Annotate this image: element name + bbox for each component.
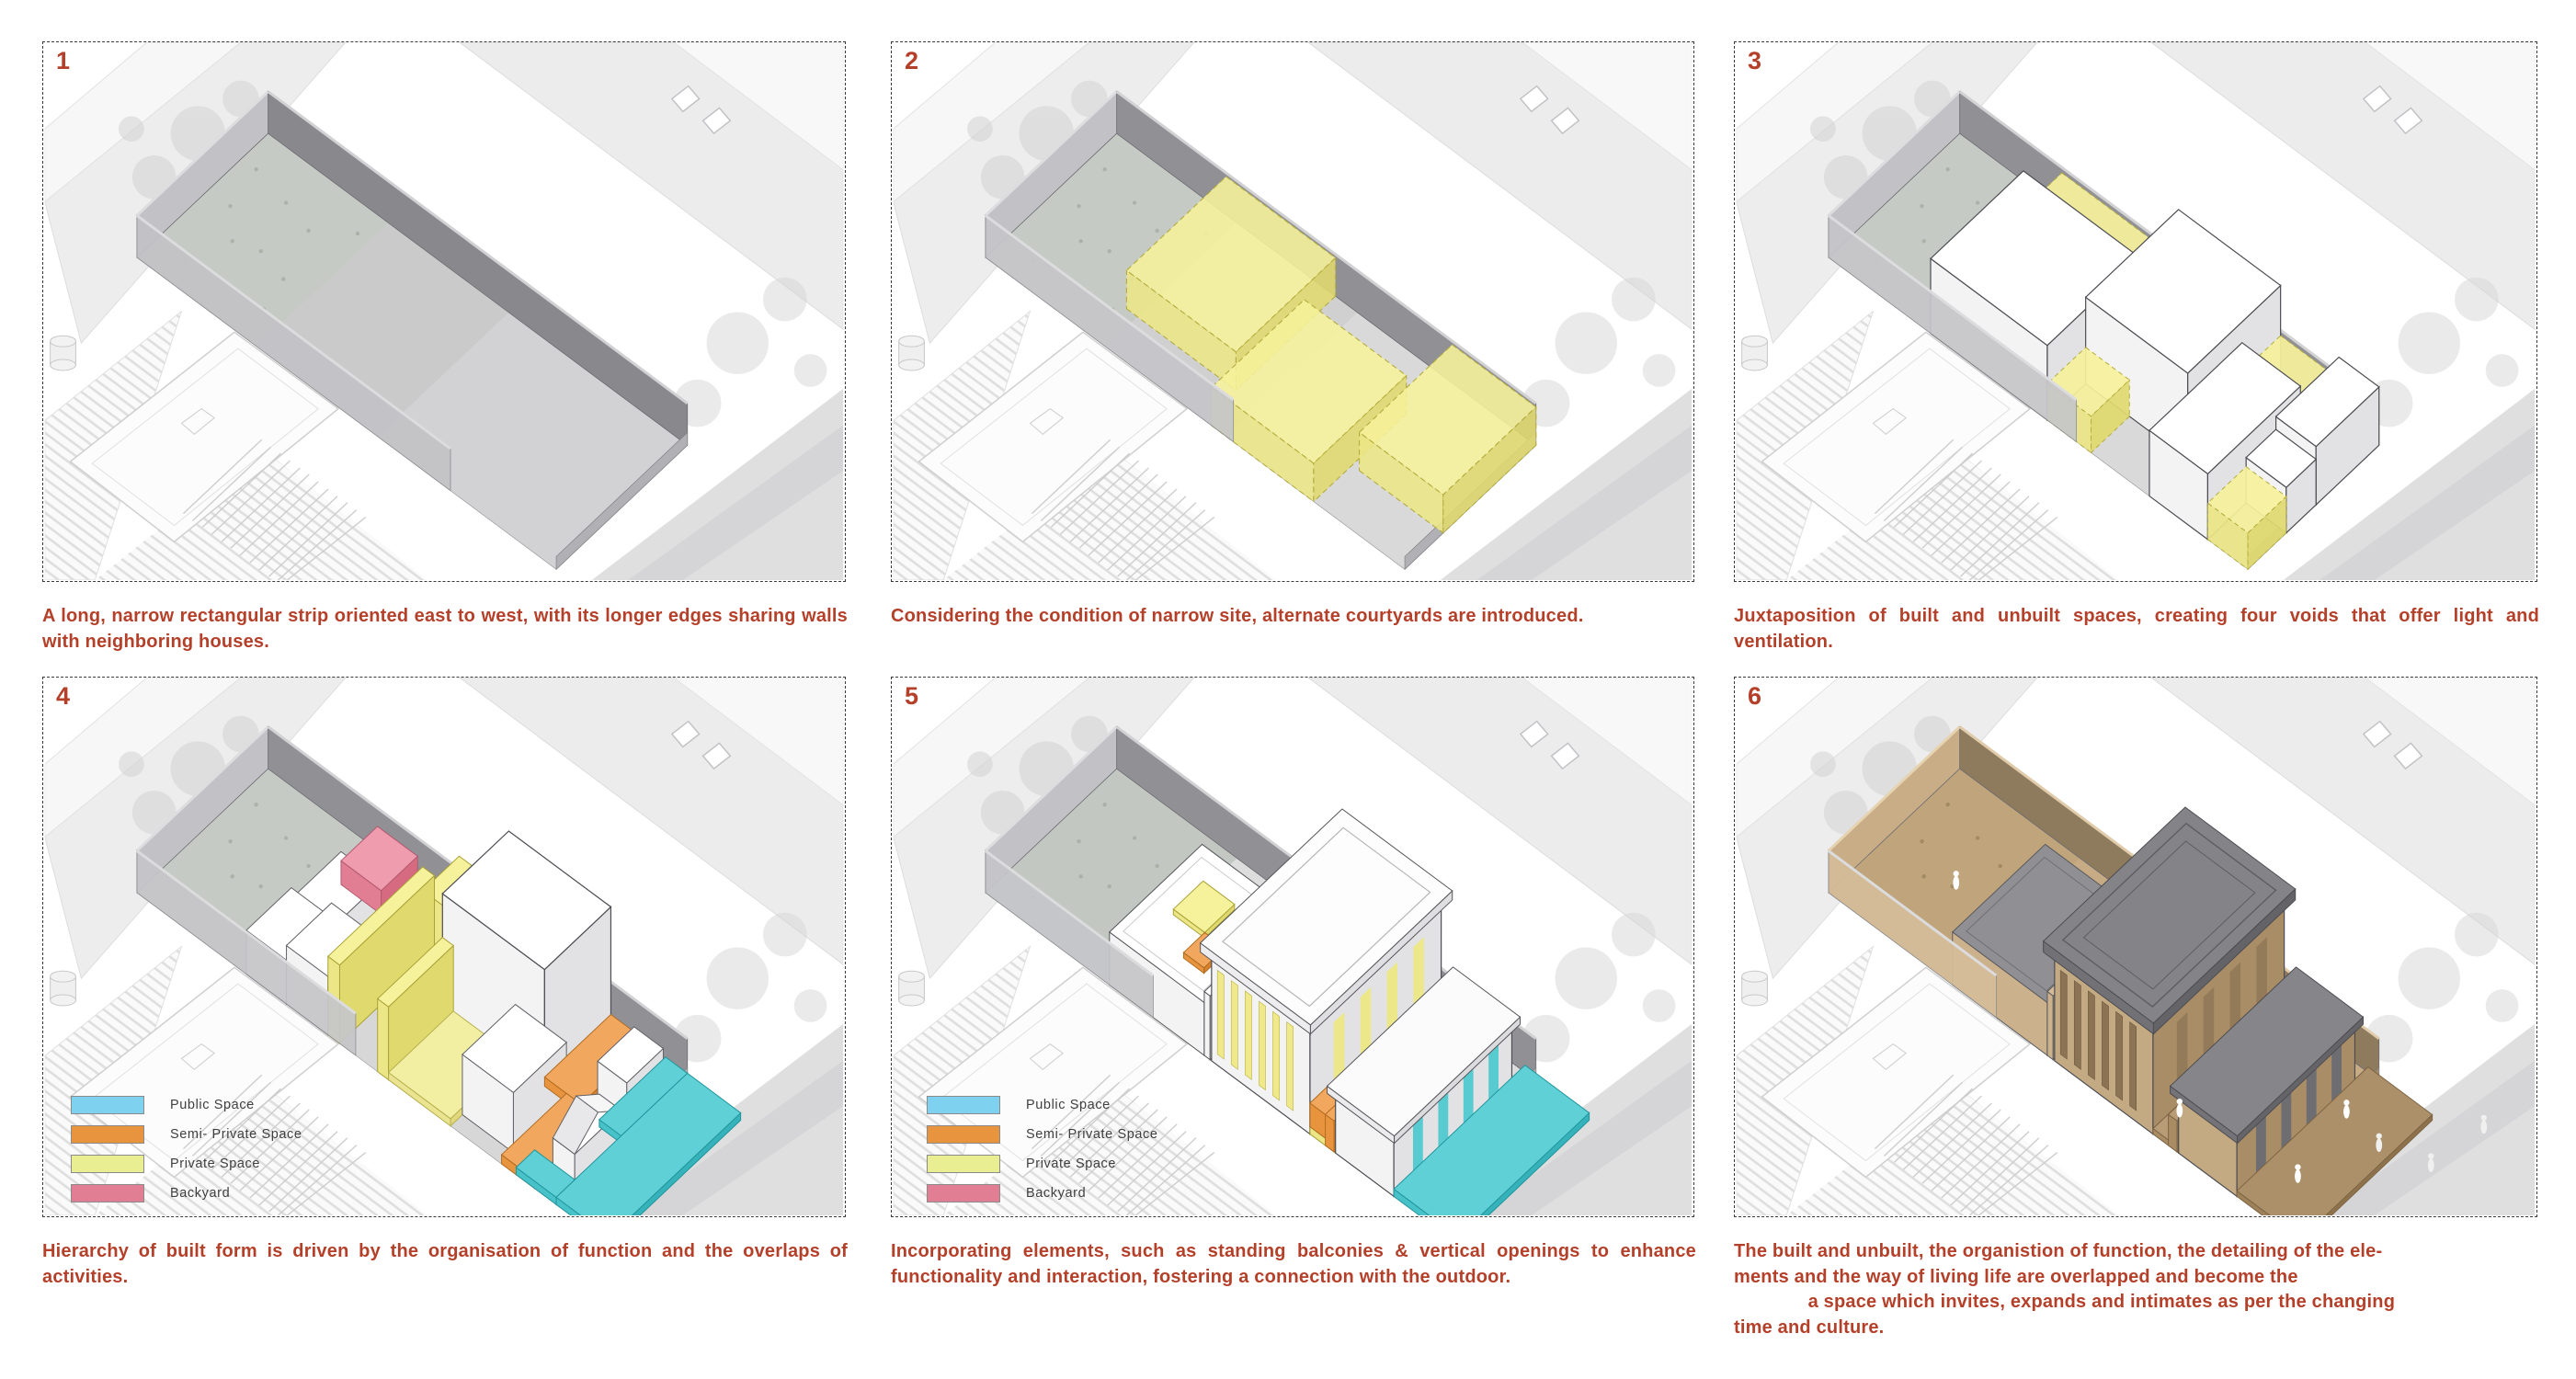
legend-swatch-private <box>927 1155 1000 1173</box>
legend-swatch-private <box>71 1155 144 1173</box>
panel-2-frame: 2 <box>891 41 1694 582</box>
panel-4-caption: Hierarchy of built form is driven by the… <box>42 1239 848 1290</box>
space-legend: Public Space Semi- Private Space Private… <box>927 1095 1158 1213</box>
legend-label-semi-private: Semi- Private Space <box>170 1127 302 1142</box>
axon-diagram-courtyards <box>892 42 1693 580</box>
legend-label-private: Private Space <box>1026 1157 1116 1171</box>
panel-1-caption: A long, narrow rectangular strip oriente… <box>42 604 848 655</box>
legend-row-private: Private Space <box>927 1154 1158 1173</box>
panel-number: 4 <box>56 684 70 709</box>
panel-number: 3 <box>1748 49 1761 74</box>
panel-number: 1 <box>56 49 70 74</box>
panel-1-cell: 1 A long, narrow rectangular strip orien… <box>42 41 848 655</box>
legend-swatch-semi-private <box>927 1125 1000 1144</box>
legend-row-public: Public Space <box>927 1095 1158 1114</box>
legend-swatch-backyard <box>927 1184 1000 1202</box>
panel-number: 5 <box>905 684 918 709</box>
panel-3-frame: 3 <box>1734 41 2537 582</box>
panel-3-caption: Juxtaposition of built and unbuilt space… <box>1734 604 2539 655</box>
legend-row-backyard: Backyard <box>927 1183 1158 1202</box>
legend-row-semi-private: Semi- Private Space <box>71 1124 302 1144</box>
legend-row-semi-private: Semi- Private Space <box>927 1124 1158 1144</box>
space-legend: Public Space Semi- Private Space Private… <box>71 1095 302 1213</box>
panel-3-cell: 3 Juxtaposition of built and unbuilt spa… <box>1734 41 2539 655</box>
panel-number: 6 <box>1748 684 1761 709</box>
axon-diagram-rendered <box>1735 678 2536 1215</box>
legend-row-private: Private Space <box>71 1154 302 1173</box>
legend-label-public: Public Space <box>1026 1098 1111 1112</box>
panel-2-cell: 2 Considering the condition of narrow si… <box>891 41 1696 630</box>
legend-swatch-public <box>927 1096 1000 1114</box>
panel-2-caption: Considering the condition of narrow site… <box>891 604 1696 630</box>
panel-4-frame: Public Space Semi- Private Space Private… <box>42 677 846 1217</box>
legend-swatch-public <box>71 1096 144 1114</box>
panel-6-frame: 6 <box>1734 677 2537 1217</box>
legend-label-backyard: Backyard <box>170 1186 230 1201</box>
legend-row-public: Public Space <box>71 1095 302 1114</box>
panel-5-caption: Incorporating elements, such as standing… <box>891 1239 1696 1290</box>
legend-label-private: Private Space <box>170 1157 260 1171</box>
panel-6-cell: 6 The built and unbuilt, the organistion… <box>1734 677 2539 1340</box>
legend-swatch-semi-private <box>71 1125 144 1144</box>
panel-6-caption: The built and unbuilt, the organistion o… <box>1734 1239 2539 1340</box>
panel-number: 2 <box>905 49 918 74</box>
panel-5-cell: Public Space Semi- Private Space Private… <box>891 677 1696 1290</box>
axon-diagram-built-unbuilt <box>1735 42 2536 580</box>
panel-1-frame: 1 <box>42 41 846 582</box>
legend-label-semi-private: Semi- Private Space <box>1026 1127 1158 1142</box>
legend-label-public: Public Space <box>170 1098 255 1112</box>
panel-5-frame: Public Space Semi- Private Space Private… <box>891 677 1694 1217</box>
legend-label-backyard: Backyard <box>1026 1186 1086 1201</box>
panel-4-cell: Public Space Semi- Private Space Private… <box>42 677 848 1290</box>
legend-swatch-backyard <box>71 1184 144 1202</box>
axon-diagram-site-strip <box>43 42 845 580</box>
legend-row-backyard: Backyard <box>71 1183 302 1202</box>
